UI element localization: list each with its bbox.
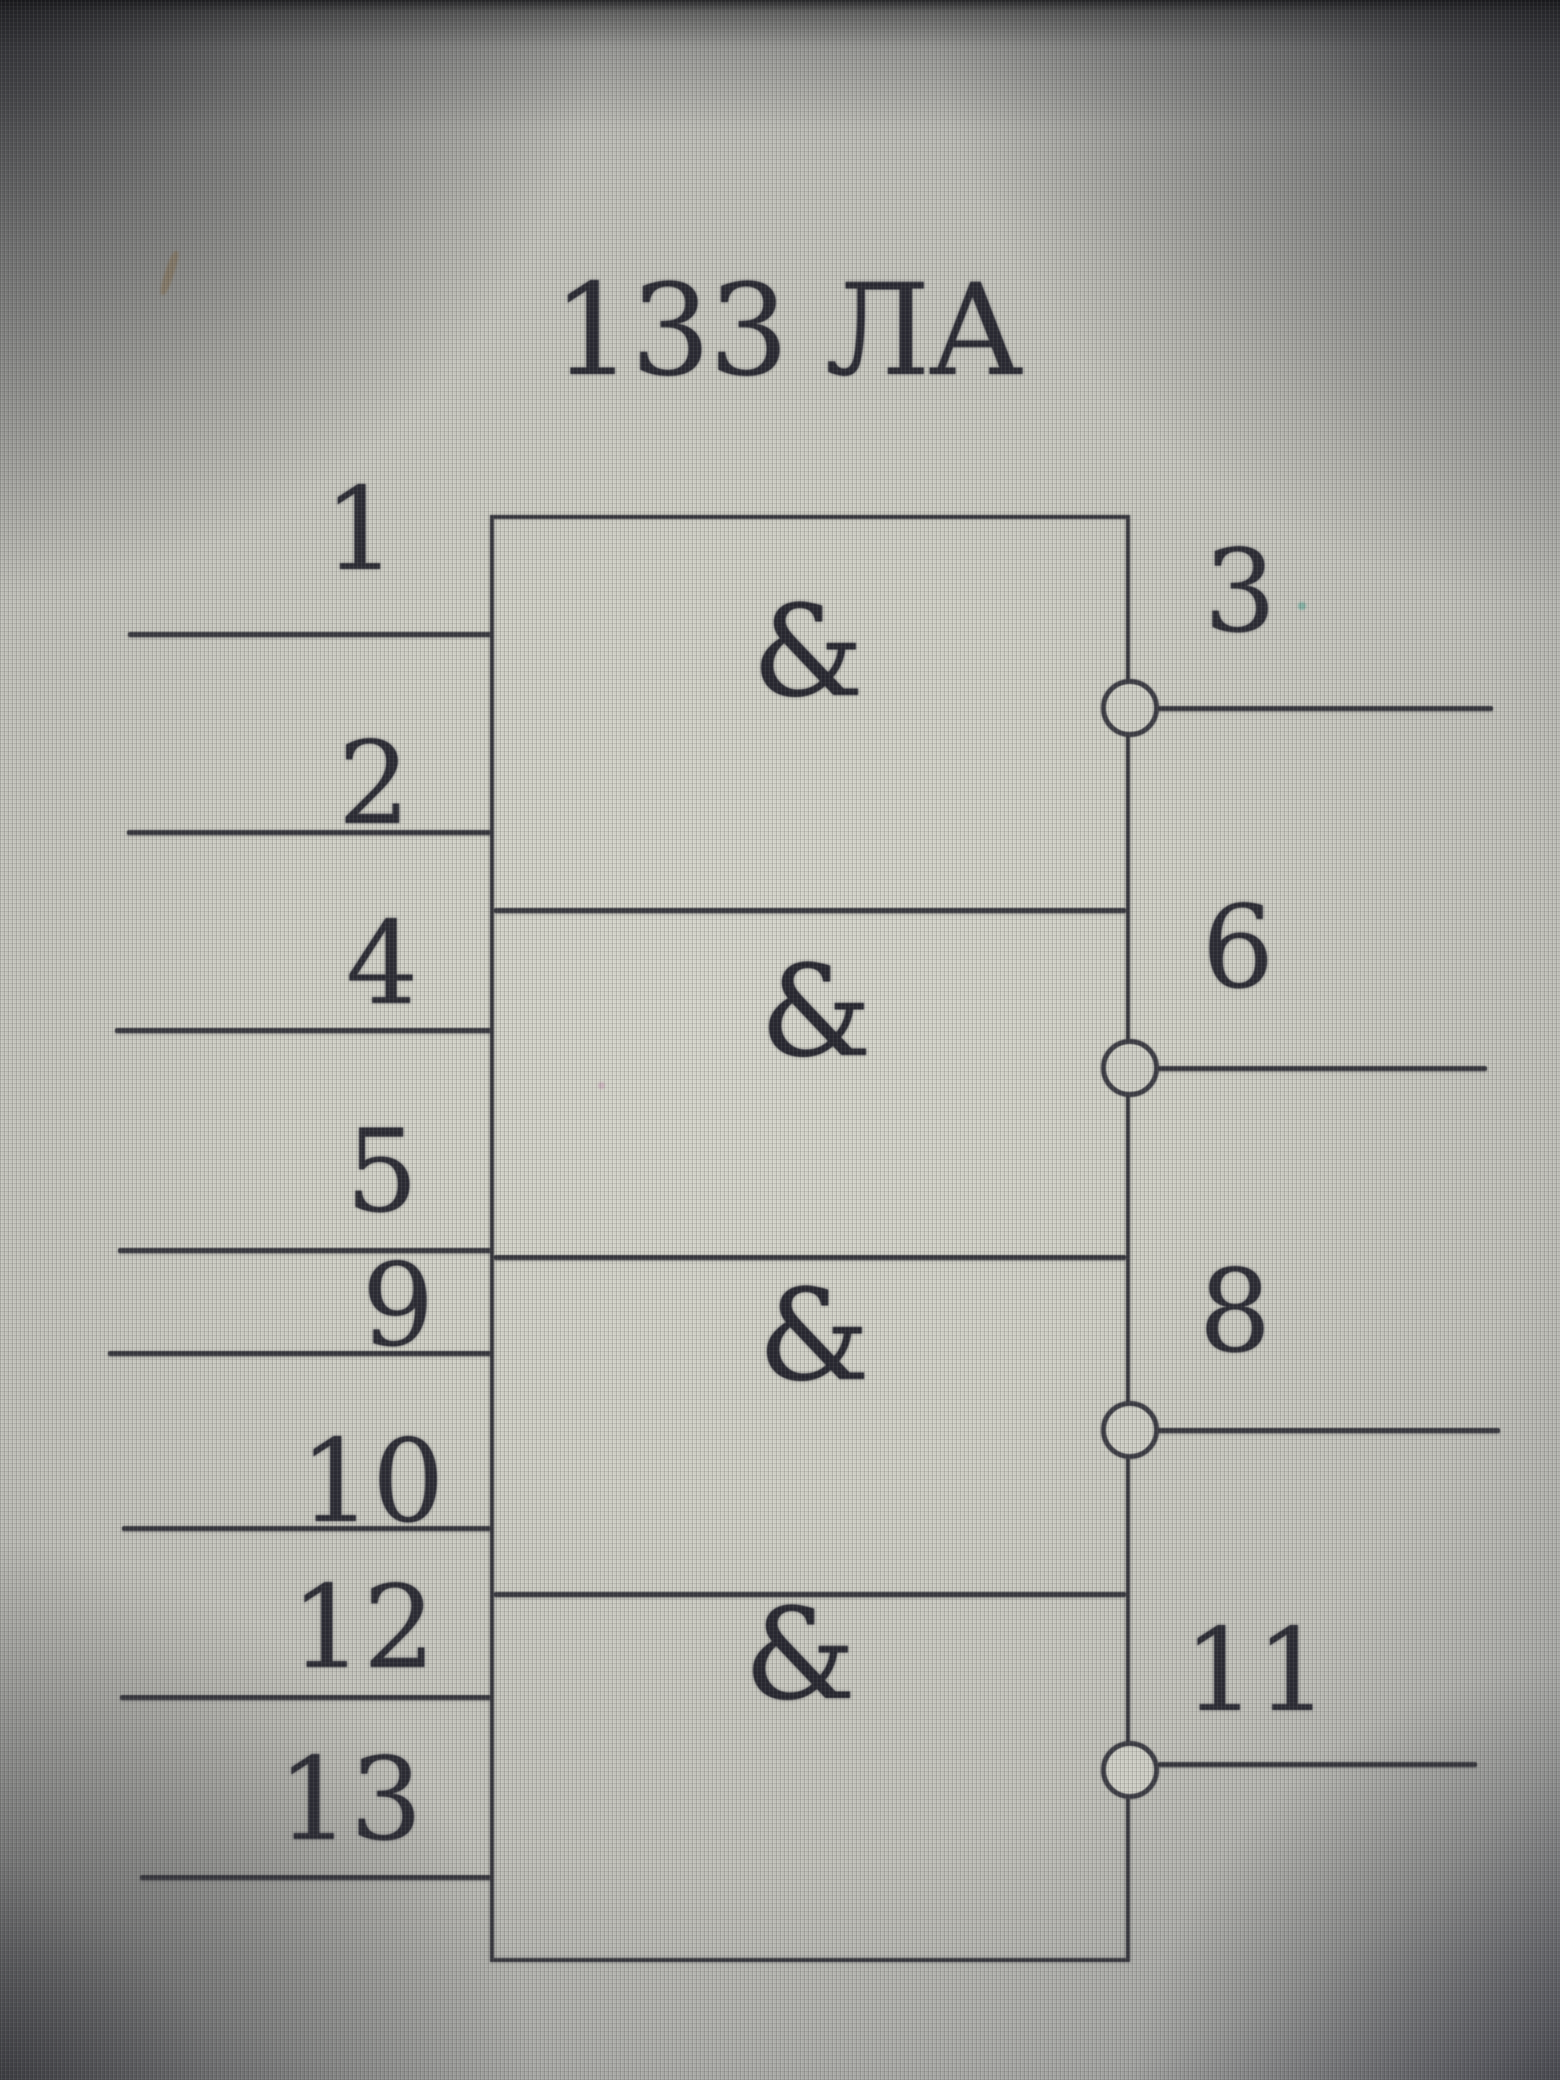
pin-1-wire bbox=[128, 632, 492, 637]
pin-11-wire bbox=[1158, 1762, 1477, 1767]
and-symbol-gate1: & bbox=[752, 589, 864, 715]
screen-photo: 133 ЛА & 1 2 3 & 4 5 6 & 9 10 8 bbox=[0, 0, 1560, 2080]
gate-divider-1 bbox=[494, 908, 1126, 913]
inversion-bubble-gate4 bbox=[1101, 1741, 1159, 1799]
and-symbol-gate4: & bbox=[744, 1592, 856, 1718]
pin-12-wire bbox=[120, 1695, 492, 1700]
pin-9-wire bbox=[108, 1351, 492, 1356]
chip-title: 133 ЛА bbox=[552, 268, 1021, 394]
pin-2-label: 2 bbox=[338, 727, 411, 841]
inversion-bubble-gate1 bbox=[1101, 679, 1159, 737]
pin-13-label: 13 bbox=[277, 1743, 422, 1857]
gate-divider-2 bbox=[494, 1255, 1126, 1260]
diagram: 133 ЛА & 1 2 3 & 4 5 6 & 9 10 8 bbox=[0, 0, 1560, 2080]
pin-9-label: 9 bbox=[362, 1249, 435, 1363]
and-symbol-gate3: & bbox=[758, 1273, 870, 1399]
chip-body bbox=[490, 515, 1130, 1962]
inversion-bubble-gate3 bbox=[1101, 1401, 1159, 1459]
pin-4-label: 4 bbox=[346, 907, 419, 1021]
pin-5-wire bbox=[118, 1248, 492, 1253]
pin-2-wire bbox=[127, 830, 492, 835]
and-symbol-gate2: & bbox=[760, 949, 872, 1075]
inversion-bubble-gate2 bbox=[1101, 1039, 1159, 1097]
pin-5-label: 5 bbox=[346, 1115, 419, 1229]
pin-1-label: 1 bbox=[324, 473, 397, 587]
pin-11-label: 11 bbox=[1183, 1614, 1328, 1728]
pin-8-wire bbox=[1158, 1428, 1500, 1433]
pin-12-label: 12 bbox=[290, 1571, 435, 1685]
pin-3-label: 3 bbox=[1204, 535, 1277, 649]
pin-6-wire bbox=[1158, 1066, 1487, 1071]
pin-13-wire bbox=[140, 1875, 492, 1880]
pin-6-label: 6 bbox=[1202, 891, 1275, 1005]
pin-10-label: 10 bbox=[299, 1425, 444, 1539]
pin-8-label: 8 bbox=[1199, 1255, 1272, 1369]
pin-3-wire bbox=[1158, 706, 1493, 711]
pin-4-wire bbox=[115, 1028, 492, 1033]
